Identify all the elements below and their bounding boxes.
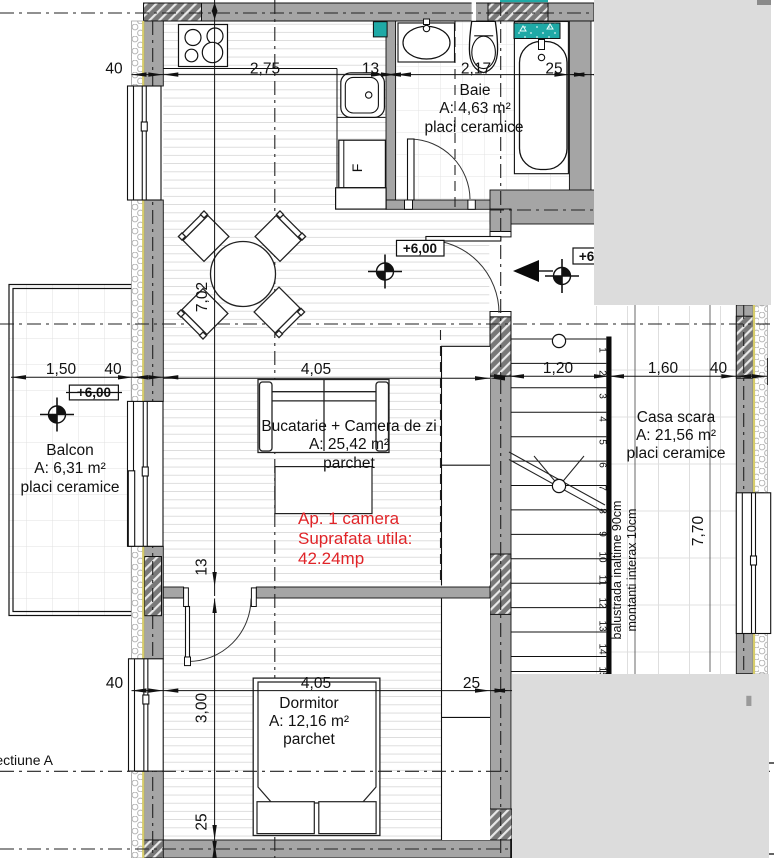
svg-text:balustrada inaltime 90cm: balustrada inaltime 90cm [610, 501, 624, 640]
svg-text:7,02: 7,02 [194, 282, 211, 312]
svg-text:A: 4,63 m²: A: 4,63 m² [439, 100, 511, 117]
svg-text:14: 14 [597, 643, 608, 655]
svg-text:1,60: 1,60 [648, 360, 679, 377]
svg-text:13: 13 [362, 61, 379, 78]
svg-text:9: 9 [597, 531, 608, 537]
svg-text:Baie: Baie [459, 82, 490, 99]
svg-text:1: 1 [597, 347, 608, 353]
svg-text:3,00: 3,00 [194, 693, 211, 724]
svg-text:7: 7 [597, 485, 608, 491]
svg-text:Balcon: Balcon [46, 442, 93, 459]
svg-text:A: 25,42 m²: A: 25,42 m² [309, 436, 389, 453]
svg-text:4,05: 4,05 [301, 675, 331, 692]
svg-text:11: 11 [597, 575, 608, 586]
svg-text:12: 12 [597, 597, 608, 609]
svg-text:Bucatarie + Camera de zi: Bucatarie + Camera de zi [261, 418, 436, 435]
svg-text:10: 10 [597, 551, 608, 563]
svg-text:25: 25 [194, 813, 211, 830]
svg-text:Dormitor: Dormitor [279, 695, 338, 712]
svg-text:4: 4 [597, 416, 608, 422]
svg-text:Sectiune A: Sectiune A [0, 752, 54, 768]
svg-text:A: 6,31 m²: A: 6,31 m² [34, 460, 106, 477]
svg-text:42.24mp: 42.24mp [298, 549, 364, 568]
svg-text:Casa scara: Casa scara [637, 409, 716, 426]
svg-text:A: 12,16 m²: A: 12,16 m² [269, 713, 349, 730]
svg-text:40: 40 [106, 675, 124, 692]
svg-text:Ap. 1 camera: Ap. 1 camera [298, 509, 400, 528]
svg-text:placi ceramice: placi ceramice [20, 479, 119, 496]
svg-text:F: F [349, 164, 365, 173]
svg-text:Suprafata utila:: Suprafata utila: [298, 529, 412, 548]
svg-text:+6,00: +6,00 [403, 241, 437, 256]
svg-text:parchet: parchet [283, 731, 335, 748]
svg-text:25: 25 [463, 675, 480, 692]
svg-text:40: 40 [104, 361, 122, 378]
svg-text:5: 5 [597, 439, 608, 445]
svg-text:40: 40 [105, 61, 123, 78]
svg-text:7,70: 7,70 [690, 516, 707, 547]
svg-text:1,20: 1,20 [543, 360, 574, 377]
svg-text:parchet: parchet [323, 455, 375, 472]
svg-text:2,17: 2,17 [461, 61, 491, 78]
svg-text:40: 40 [710, 360, 728, 377]
svg-text:placi ceramice: placi ceramice [626, 445, 725, 462]
svg-text:montanti interax 10cm: montanti interax 10cm [625, 509, 639, 632]
svg-text:A: 21,56 m²: A: 21,56 m² [636, 427, 716, 444]
svg-text:25: 25 [545, 61, 562, 78]
svg-text:13: 13 [194, 558, 211, 575]
svg-text:3: 3 [597, 393, 608, 399]
svg-text:1,50: 1,50 [46, 361, 77, 378]
svg-text:13: 13 [597, 620, 608, 632]
svg-text:4,05: 4,05 [301, 361, 331, 378]
svg-text:2,75: 2,75 [250, 61, 280, 78]
svg-text:6: 6 [597, 462, 608, 468]
svg-text:placi ceramice: placi ceramice [424, 119, 523, 136]
